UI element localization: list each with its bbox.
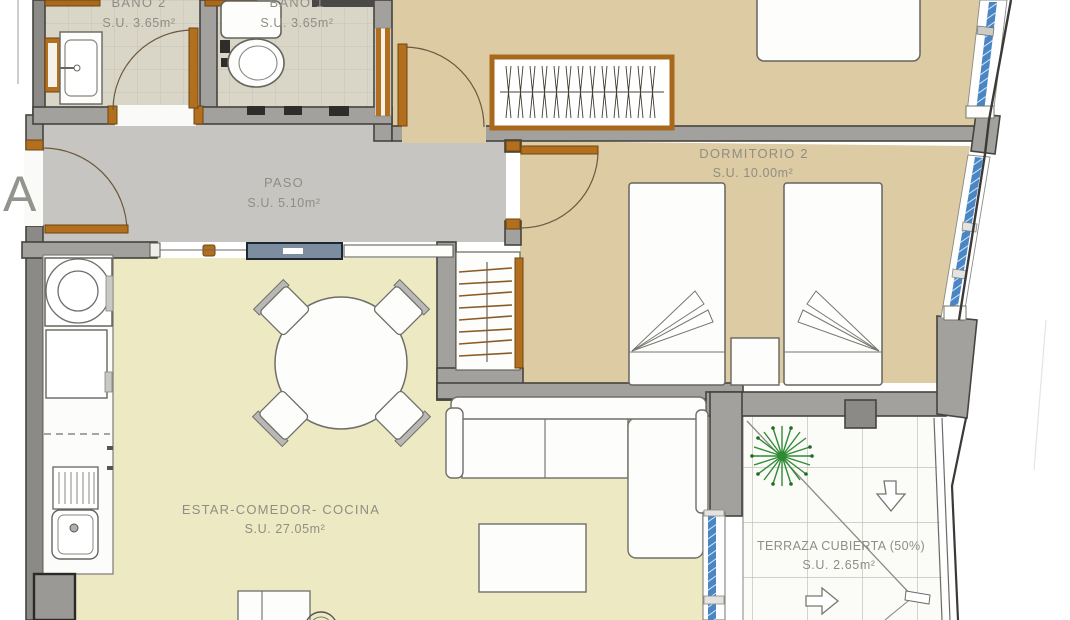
nightstand: [731, 338, 779, 385]
estar-terraza-pillar: [710, 392, 742, 516]
bano1-door: [375, 28, 391, 116]
dorm1-bed: [757, 0, 920, 61]
left-exterior-wall: [26, 226, 43, 620]
sofa-back: [451, 397, 706, 419]
slider-handle: [283, 248, 303, 254]
washbasin: [60, 32, 102, 104]
closet-doors: [515, 258, 523, 368]
bano2-door-leaf: [189, 28, 198, 108]
dorm1-wardrobe: [492, 57, 672, 128]
terraza-pier: [845, 400, 876, 428]
estar-area: S.U. 27.05m²: [245, 522, 326, 536]
paso-area: S.U. 5.10m²: [247, 196, 320, 210]
terraza-window-door: [703, 510, 725, 620]
dorm2-area: S.U. 10.00m²: [713, 166, 794, 180]
closet: [456, 252, 523, 370]
dorm2-window-sill: [944, 306, 966, 320]
sliding-door: [150, 243, 453, 259]
bano1-area: S.U. 3.65m²: [260, 16, 333, 30]
column: [34, 574, 75, 620]
dorm1-door-leaf: [398, 44, 407, 126]
single-bed-1: [629, 183, 725, 385]
terraza-label: TERRAZA CUBIERTA (50%): [757, 539, 925, 553]
bano1-label: BAÑO 1: [270, 0, 325, 10]
drainer: [53, 467, 98, 509]
coffee-table: [479, 524, 586, 592]
fridge: [46, 330, 112, 398]
floor-plan: BAÑO 2 S.U. 3.65m² BAÑO 1 S.U. 3.65m² PA…: [0, 0, 1070, 620]
kitchen-sink: [52, 467, 98, 559]
terraza-area: S.U. 2.65m²: [802, 558, 875, 572]
dorm2-label: DORMITORIO 2: [699, 146, 809, 161]
dorm2-door-leaf: [521, 146, 598, 154]
bano2-label: BAÑO 2: [112, 0, 167, 10]
sofa-chaise: [628, 418, 703, 558]
estar-label: ESTAR-COMEDOR- COCINA: [182, 502, 380, 517]
bano2-left-wall: [33, 0, 45, 115]
sofa-arm: [446, 408, 463, 478]
bano-divider-wall: [200, 0, 217, 115]
block-label-a: A: [3, 166, 37, 222]
washing-machine: [45, 258, 113, 326]
paso-label: PASO: [264, 175, 304, 190]
slider-pocket: [344, 245, 453, 257]
dormitorio2-furniture: [456, 183, 882, 385]
bano2-area: S.U. 3.65m²: [102, 16, 175, 30]
dorm2-corner-wall: [937, 316, 977, 418]
drain: [70, 524, 78, 532]
single-bed-2: [784, 183, 882, 385]
entrance-door-leaf: [45, 225, 128, 233]
sofa-arm: [696, 410, 708, 513]
wall-hatch-marks: [247, 106, 349, 116]
kitchen: [34, 255, 113, 620]
floor-plan-svg: BAÑO 2 S.U. 3.65m² BAÑO 1 S.U. 3.65m² PA…: [0, 0, 1070, 620]
